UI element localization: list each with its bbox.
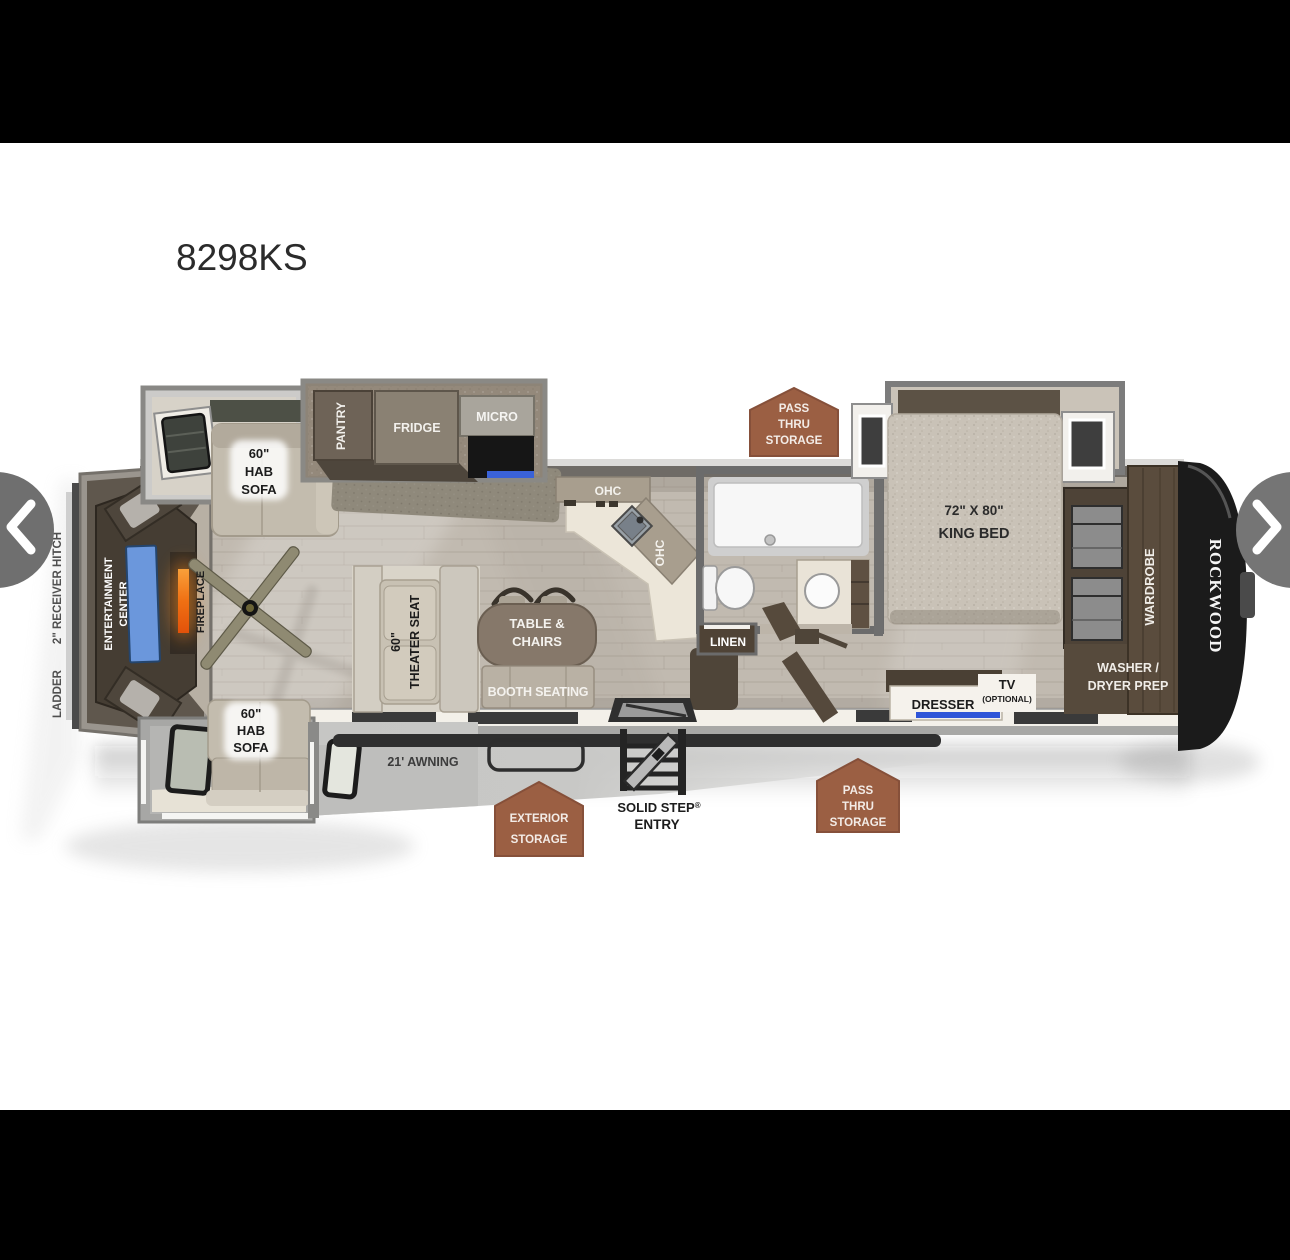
svg-text:(OPTIONAL): (OPTIONAL) <box>982 694 1032 704</box>
svg-text:ENTRY: ENTRY <box>634 817 679 832</box>
svg-text:2" RECEIVER HITCH: 2" RECEIVER HITCH <box>52 532 64 644</box>
svg-text:21' AWNING: 21' AWNING <box>387 755 458 769</box>
svg-text:BOOTH SEATING: BOOTH SEATING <box>488 685 589 699</box>
svg-text:PASS: PASS <box>779 403 810 415</box>
svg-text:ENTERTAINMENT: ENTERTAINMENT <box>103 557 115 651</box>
svg-text:CHAIRS: CHAIRS <box>512 634 562 649</box>
svg-text:FRIDGE: FRIDGE <box>393 421 440 435</box>
svg-text:SOLID STEP®: SOLID STEP® <box>617 800 700 815</box>
svg-text:HAB: HAB <box>237 723 265 738</box>
svg-text:FIREPLACE: FIREPLACE <box>195 571 207 633</box>
svg-text:60": 60" <box>249 446 270 461</box>
svg-text:LINEN: LINEN <box>710 635 746 649</box>
svg-text:ROCKWOOD: ROCKWOOD <box>1206 539 1225 654</box>
svg-text:TABLE &: TABLE & <box>509 616 564 631</box>
svg-text:STORAGE: STORAGE <box>830 817 887 829</box>
svg-text:72" X 80": 72" X 80" <box>944 503 1003 518</box>
svg-text:THRU: THRU <box>842 801 874 813</box>
svg-text:MICRO: MICRO <box>476 410 518 424</box>
svg-text:PANTRY: PANTRY <box>334 402 348 450</box>
svg-text:OHC: OHC <box>653 539 667 566</box>
svg-text:8298KS: 8298KS <box>176 237 308 278</box>
svg-text:DRYER PREP: DRYER PREP <box>1088 679 1169 693</box>
svg-text:STORAGE: STORAGE <box>766 435 823 447</box>
svg-text:SOFA: SOFA <box>233 740 269 755</box>
svg-text:PASS: PASS <box>843 785 874 797</box>
svg-text:60": 60" <box>389 632 403 652</box>
svg-text:STORAGE: STORAGE <box>511 834 568 846</box>
svg-text:KING BED: KING BED <box>939 526 1010 542</box>
svg-text:THEATER SEAT: THEATER SEAT <box>408 595 422 689</box>
svg-text:THRU: THRU <box>778 419 810 431</box>
svg-text:60": 60" <box>241 706 262 721</box>
svg-text:SOFA: SOFA <box>241 482 277 497</box>
svg-text:WARDROBE: WARDROBE <box>1142 548 1157 626</box>
svg-text:OHC: OHC <box>595 484 622 498</box>
svg-text:WASHER /: WASHER / <box>1097 661 1159 675</box>
svg-text:DRESSER: DRESSER <box>912 697 975 712</box>
svg-text:EXTERIOR: EXTERIOR <box>510 813 569 825</box>
svg-text:TV: TV <box>999 677 1016 692</box>
svg-text:HAB: HAB <box>245 464 273 479</box>
svg-text:LADDER: LADDER <box>52 669 64 718</box>
